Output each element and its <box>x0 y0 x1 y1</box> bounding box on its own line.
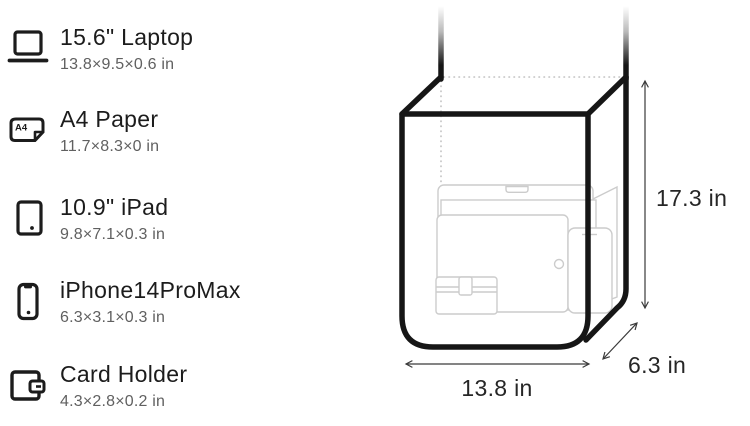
card-holder-outline <box>436 277 497 314</box>
height-dimension-label: 17.3 in <box>656 185 727 211</box>
bag-dimension-diagram: A4 <box>0 0 750 426</box>
bag-top-left-edge <box>402 77 441 114</box>
width-dimension-label: 13.8 in <box>461 375 532 401</box>
depth-dimension-label: 6.3 in <box>628 352 686 378</box>
bag-size-infographic: 15.6" Laptop 13.8×9.5×0.6 in A4 A4 Paper… <box>0 0 750 426</box>
bag-top-right-edge <box>588 77 626 114</box>
